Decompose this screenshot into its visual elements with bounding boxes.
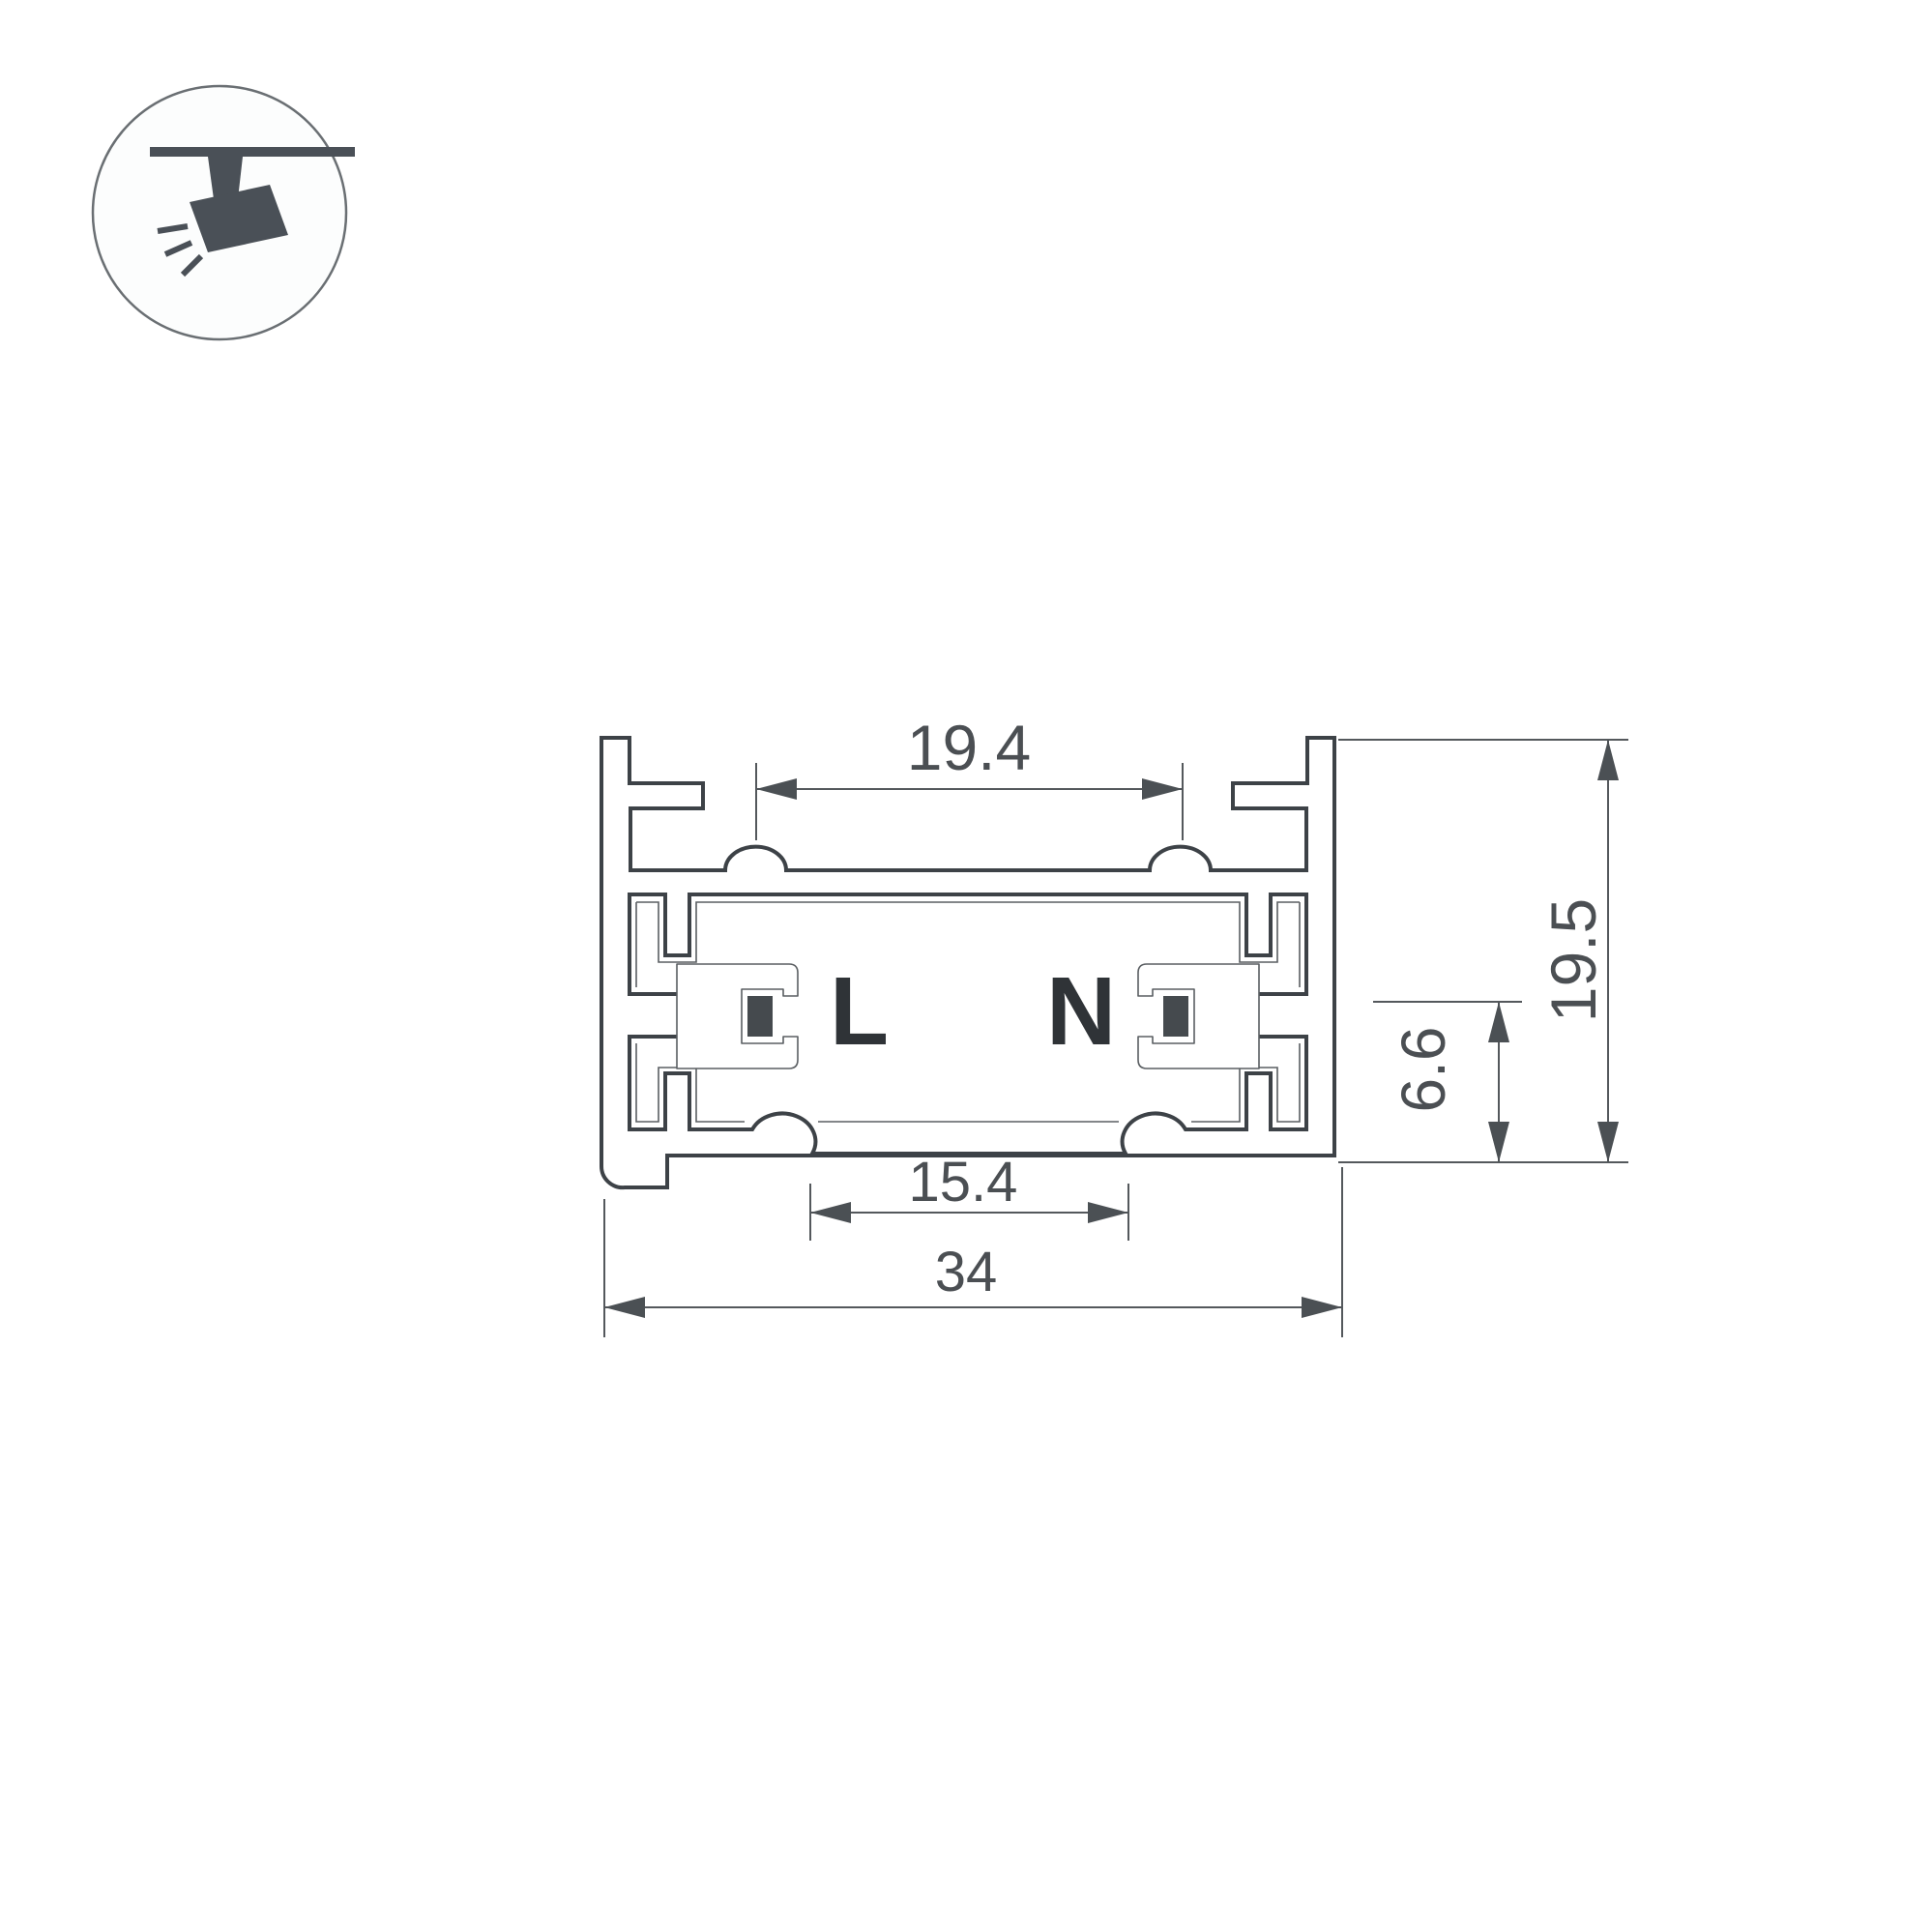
arrowhead-right [1302, 1297, 1342, 1318]
conductor-neutral [1163, 996, 1188, 1037]
dimension-bottom-opening-width: 15.4 [810, 1151, 1128, 1241]
profile-cross-section: L N [601, 738, 1334, 1187]
label-live: L [830, 957, 889, 1066]
arrowhead-right [1088, 1202, 1128, 1223]
arrowhead-bottom [1597, 1122, 1619, 1162]
track-profile-drawing: L N 19.4 15.4 34 19.5 [0, 0, 1932, 1932]
icon-ceiling-bar [150, 147, 355, 157]
arrowhead-left [756, 778, 797, 800]
dimension-value: 15.4 [909, 1151, 1018, 1214]
arrowhead-left [604, 1297, 645, 1318]
drawing-canvas: L N 19.4 15.4 34 19.5 [0, 0, 1932, 1932]
dimension-conductor-height: 6.6 [1373, 1002, 1522, 1162]
track-light-icon [93, 86, 355, 339]
dimension-top-channel-width: 19.4 [756, 712, 1183, 840]
dimension-overall-height: 19.5 [1338, 740, 1628, 1162]
arrowhead-top [1597, 740, 1619, 780]
arrowhead-left [810, 1202, 851, 1223]
dimension-value: 34 [935, 1241, 998, 1303]
arrowhead-right [1142, 778, 1183, 800]
dimension-value: 6.6 [1389, 1027, 1458, 1113]
dimension-value: 19.4 [907, 712, 1031, 783]
arrowhead-bottom [1488, 1122, 1509, 1162]
conductor-live [747, 996, 773, 1037]
label-neutral: N [1046, 957, 1116, 1066]
dimension-value: 19.5 [1537, 898, 1609, 1022]
arrowhead-top [1488, 1002, 1509, 1042]
